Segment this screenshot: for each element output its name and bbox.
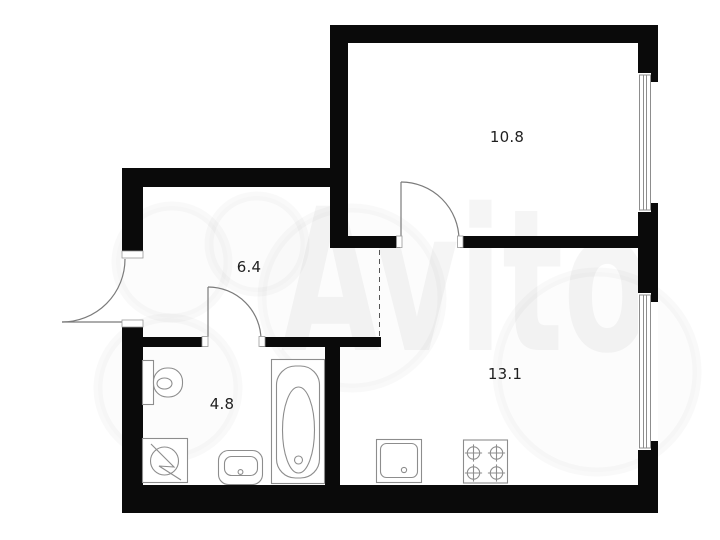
window-kitchen <box>638 293 658 450</box>
room-door <box>401 182 459 240</box>
room-label-bathroom: 4.8 <box>210 395 234 413</box>
bathtub-icon <box>272 360 325 484</box>
toilet-icon <box>143 361 183 405</box>
room-label-top-right: 10.8 <box>490 128 524 146</box>
room-label-kitchen: 13.1 <box>488 365 522 383</box>
plan-linework <box>0 0 720 540</box>
kitchen-sink-icon <box>377 440 422 483</box>
window-top-room <box>638 73 658 212</box>
stove-icon <box>464 440 508 483</box>
bathroom-door <box>208 287 261 340</box>
door-jamb-ticks <box>122 236 463 347</box>
washbasin-icon <box>219 451 263 485</box>
floor-plan: Avito <box>0 0 720 540</box>
room-label-hallway: 6.4 <box>237 258 261 276</box>
entry-door <box>62 259 125 322</box>
washing-machine-icon <box>143 439 188 483</box>
